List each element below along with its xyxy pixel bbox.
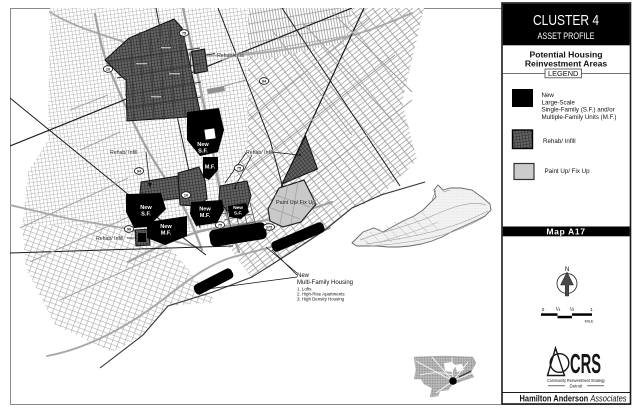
svg-text:375: 375: [266, 225, 273, 230]
svg-text:Reinvestment Areas: Reinvestment Areas: [525, 59, 608, 69]
svg-text:Community Reinvestment Strateg: Community Reinvestment Strategy: [547, 378, 606, 383]
svg-text:1: 1: [590, 307, 593, 312]
svg-text:M.F.: M.F.: [205, 165, 216, 171]
svg-text:3. High Density Housing: 3. High Density Housing: [297, 297, 345, 302]
svg-text:Single-Family (S.F.) and/or: Single-Family (S.F.) and/or: [542, 107, 615, 114]
svg-text:Rehab/ Infill: Rehab/ Infill: [96, 236, 123, 242]
svg-text:New: New: [233, 205, 243, 211]
svg-text:New: New: [160, 224, 172, 230]
svg-text:Map A17: Map A17: [546, 226, 585, 236]
svg-text:New: New: [297, 273, 310, 279]
svg-text:New: New: [199, 207, 211, 213]
svg-text:Detroit: Detroit: [570, 384, 584, 389]
svg-text:CLUSTER 4: CLUSTER 4: [533, 12, 599, 29]
svg-text:Multiple-Family Units (M.F.): Multiple-Family Units (M.F.): [542, 114, 617, 121]
svg-text:Large-Scale: Large-Scale: [542, 99, 576, 106]
svg-text:Rehab/ Infill: Rehab/ Infill: [110, 150, 137, 156]
svg-text:Paint Up/ Fix Up: Paint Up/ Fix Up: [545, 168, 591, 175]
svg-text:Paint Up/ Fix Up: Paint Up/ Fix Up: [276, 200, 315, 206]
svg-text:0: 0: [542, 307, 545, 312]
svg-text:MILE: MILE: [585, 320, 594, 324]
svg-text:10: 10: [106, 67, 110, 72]
svg-text:10: 10: [184, 193, 188, 198]
svg-text:Rehab/ Infill: Rehab/ Infill: [158, 39, 185, 45]
svg-text:M.F.: M.F.: [200, 213, 211, 219]
svg-text:S.F.: S.F.: [198, 149, 208, 155]
svg-text:¼: ¼: [556, 307, 561, 313]
svg-text:Hamilton Anderson Associates: Hamilton Anderson Associates: [520, 394, 627, 404]
svg-text:New: New: [140, 205, 152, 211]
svg-text:Rehab/ Infill: Rehab/ Infill: [246, 150, 273, 156]
svg-text:½: ½: [570, 306, 575, 313]
svg-text:Multi-Family Housing: Multi-Family Housing: [297, 280, 353, 286]
svg-text:LEGEND: LEGEND: [548, 69, 578, 78]
svg-text:Rehab/ Infill: Rehab/ Infill: [543, 138, 576, 145]
svg-text:S.F.: S.F.: [234, 211, 242, 217]
svg-text:CRS: CRS: [570, 348, 601, 379]
svg-text:S.F.: S.F.: [141, 212, 151, 218]
svg-text:ASSET PROFILE: ASSET PROFILE: [538, 31, 595, 41]
svg-text:New: New: [542, 92, 555, 99]
svg-text:M.F.: M.F.: [161, 231, 172, 237]
svg-text:Rehab/ Infill: Rehab/ Infill: [217, 53, 244, 59]
svg-text:New: New: [197, 142, 209, 148]
